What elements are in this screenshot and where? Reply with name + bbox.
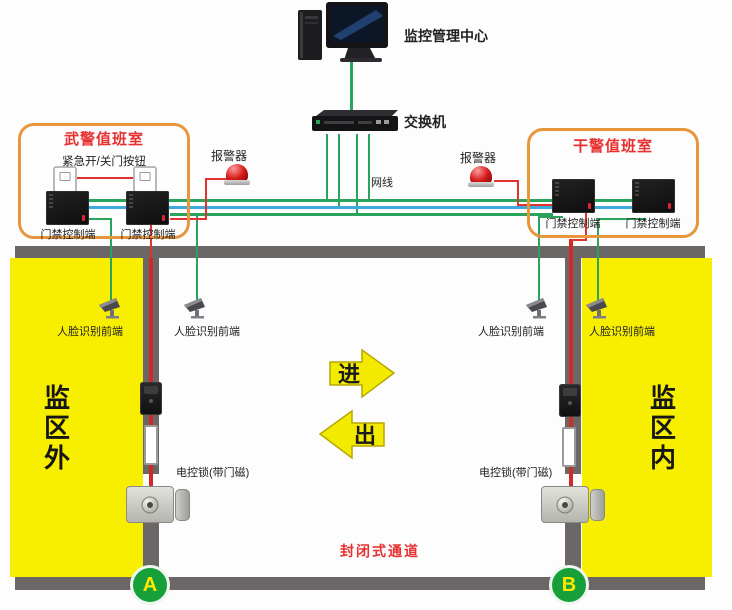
right-duty-room-title: 干警值班室 xyxy=(527,135,699,156)
wire-left-alarm-v xyxy=(205,178,207,220)
camera-left-inner xyxy=(182,296,212,320)
switch-label: 交换机 xyxy=(404,112,446,132)
left-duty-room-title: 武警值班室 xyxy=(18,128,190,149)
cctv-camera-icon xyxy=(182,296,212,320)
left-electric-lock xyxy=(126,486,174,523)
network-switch xyxy=(308,108,400,136)
bottom-wall xyxy=(15,577,705,590)
right-alarm-label: 报警器 xyxy=(460,149,496,166)
right-controller-2 xyxy=(632,179,675,213)
right-controller-2-label: 门禁控制端 xyxy=(621,215,685,231)
network-cable-label: 网线 xyxy=(371,174,393,190)
emergency-button-close xyxy=(133,166,157,193)
right-lock-strike xyxy=(590,489,605,521)
cctv-camera-icon xyxy=(524,296,554,320)
camera-left-outer xyxy=(97,296,127,320)
camera-right-inner xyxy=(524,296,554,320)
camera-right-inner-label: 人脸识别前端 xyxy=(471,323,551,339)
left-controller-1-label: 门禁控制端 xyxy=(36,226,100,242)
left-controller-1 xyxy=(46,191,89,225)
right-lock-label: 电控锁(带门磁) xyxy=(479,464,552,480)
gate-b-badge: B xyxy=(549,565,589,605)
monitor-center-label: 监控管理中心 xyxy=(404,26,488,46)
flow-arrows: 进 出 xyxy=(312,345,402,460)
button-glyph xyxy=(60,172,71,181)
emergency-button-open xyxy=(53,166,77,193)
wire-right-alarm-v xyxy=(517,180,519,206)
wire-bus-green-bottom xyxy=(170,213,553,216)
outside-zone-label: 监区外 xyxy=(42,383,72,473)
exit-arrow-text: 出 xyxy=(354,423,376,448)
passage-label: 封闭式通道 xyxy=(300,541,460,561)
cctv-camera-icon xyxy=(97,296,127,320)
access-control-topology-diagram: 监控管理中心 交换机 网线 武警值班室 紧急开/关门按钮 门禁控制端 门禁控制端… xyxy=(0,0,732,610)
button-glyph xyxy=(140,172,151,181)
wire-right-alarm-h1 xyxy=(494,180,519,182)
left-controller-2-label: 门禁控制端 xyxy=(116,226,180,242)
gate-a-badge: A xyxy=(130,565,170,605)
gate-a-letter: A xyxy=(143,574,157,597)
camera-left-inner-label: 人脸识别前端 xyxy=(167,323,247,339)
left-controller-2 xyxy=(126,191,169,225)
left-lock-label: 电控锁(带门磁) xyxy=(176,464,249,480)
switch-icon xyxy=(308,108,400,136)
inside-zone-label: 监区内 xyxy=(648,383,678,473)
wire-switch-drop-4 xyxy=(368,134,370,200)
camera-right-outer-label: 人脸识别前端 xyxy=(582,323,662,339)
enter-arrow-text: 进 xyxy=(338,362,360,387)
computer-icon xyxy=(296,2,396,64)
wire-switch-drop-1 xyxy=(326,134,328,200)
left-alarm-label: 报警器 xyxy=(211,147,247,164)
left-door-reader xyxy=(140,382,162,415)
management-workstation xyxy=(296,2,396,64)
wire-monitor-switch xyxy=(350,62,353,112)
cctv-camera-icon xyxy=(584,296,614,320)
left-alarm-siren-icon xyxy=(226,164,248,181)
emergency-button-label: 紧急开/关门按钮 xyxy=(26,153,182,169)
right-alarm-siren-icon xyxy=(470,166,492,183)
top-wall xyxy=(15,246,705,258)
camera-left-outer-label: 人脸识别前端 xyxy=(50,323,130,339)
camera-right-outer xyxy=(584,296,614,320)
left-door-magnet xyxy=(144,425,158,465)
wire-switch-drop-2 xyxy=(338,134,340,207)
right-controller-1 xyxy=(552,179,595,213)
wire-camera2-v xyxy=(196,214,198,300)
right-door-magnet xyxy=(562,427,576,467)
gate-b-letter: B xyxy=(562,574,576,597)
right-door-reader xyxy=(559,384,581,417)
right-controller-1-label: 门禁控制端 xyxy=(541,215,605,231)
right-electric-lock xyxy=(541,486,589,523)
left-lock-strike xyxy=(175,489,190,521)
wire-right-lock-drop-h xyxy=(571,239,587,241)
wire-switch-drop-3 xyxy=(356,134,358,214)
